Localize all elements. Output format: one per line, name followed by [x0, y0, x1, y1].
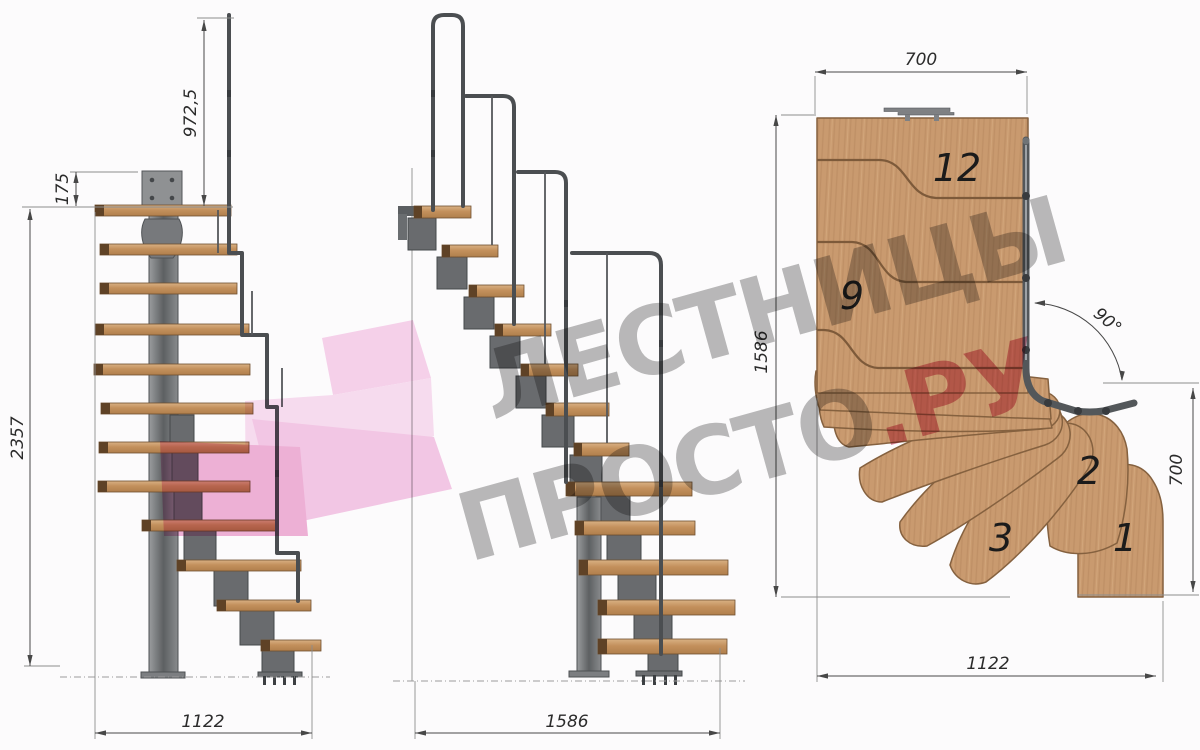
step-number-2: 2 — [1077, 449, 1101, 493]
dim-turn-angle: 90° — [1034, 300, 1199, 383]
dim-label-front-run: 1586 — [545, 712, 588, 732]
dim-label-rail-height: 972,5 — [181, 89, 201, 138]
top-mounting-plate — [142, 171, 182, 207]
dim-label-side-run: 1122 — [181, 712, 224, 732]
dim-label-total-height: 2357 — [8, 416, 28, 459]
staircase-drawing-canvas: 972,5 175 2357 1122 — [0, 0, 1200, 750]
step-number-1: 1 — [1113, 516, 1137, 560]
dim-plan-top-width: 700 — [815, 50, 1027, 114]
drawing-svg: 972,5 175 2357 1122 — [0, 0, 1200, 750]
dim-label-plan-top-width: 700 — [905, 50, 937, 70]
watermark-arrow-facet-4 — [160, 441, 308, 536]
dim-label-plan-right-height: 700 — [1167, 454, 1187, 486]
dim-plan-right-height: 700 — [1167, 388, 1196, 592]
dim-plate-height: 175 — [22, 172, 233, 207]
step-number-12: 12 — [933, 146, 981, 190]
watermark-arrow — [160, 320, 452, 536]
dim-label-plan-bottom-width: 1122 — [966, 654, 1009, 674]
dim-label-plate: 175 — [53, 173, 73, 205]
dim-rail-height: 972,5 — [181, 18, 234, 206]
dim-total-height: 2357 — [8, 209, 60, 666]
front-anchor-bolts — [636, 671, 682, 685]
dim-label-turn-angle: 90° — [1089, 304, 1125, 339]
view-side-elevation: 972,5 175 2357 1122 — [8, 15, 330, 739]
step-number-3: 3 — [989, 516, 1013, 560]
front-column-base — [569, 671, 609, 677]
